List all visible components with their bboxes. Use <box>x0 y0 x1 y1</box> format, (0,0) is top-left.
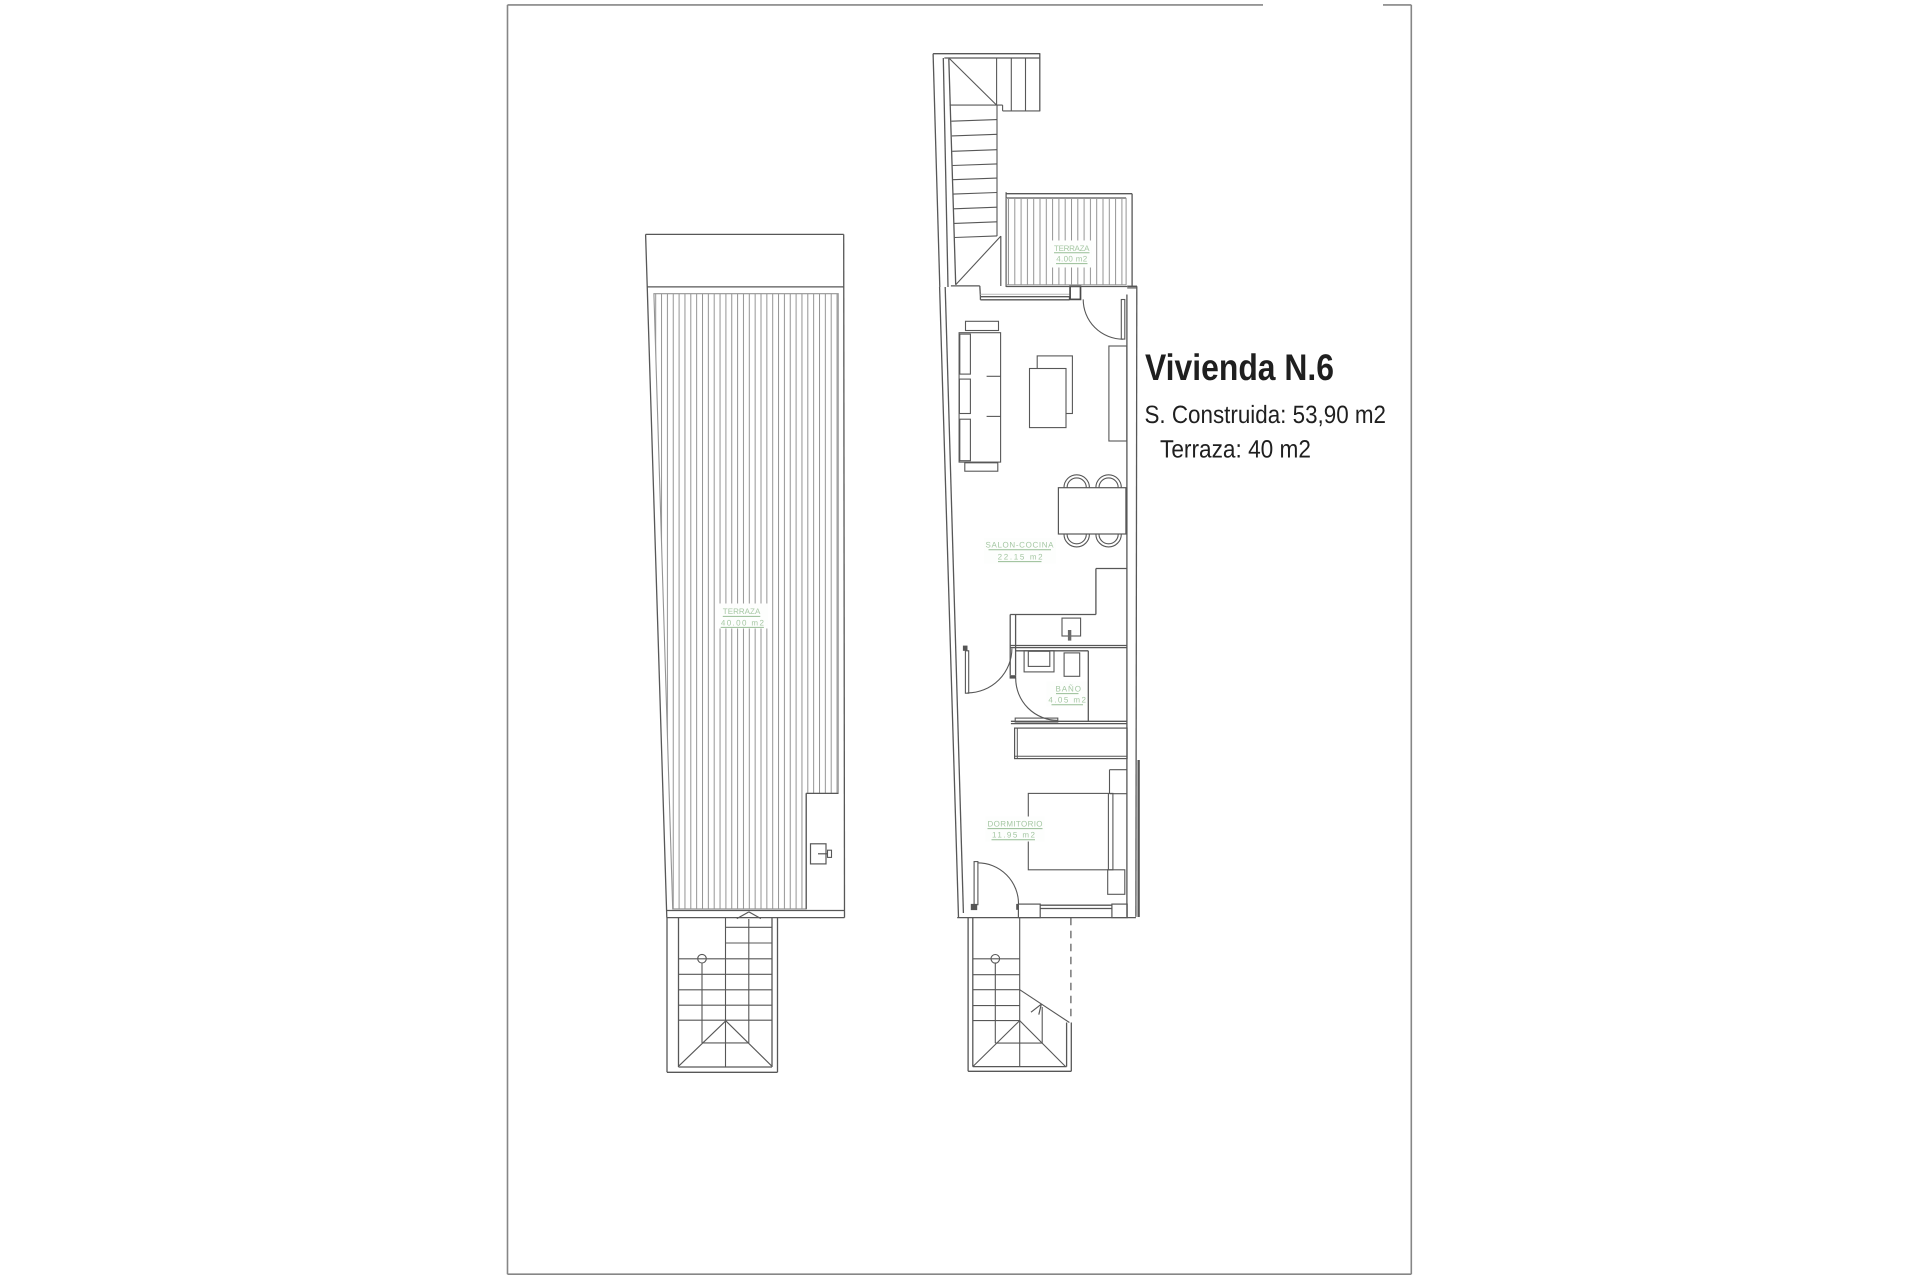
svg-text:SALON-COCINA: SALON-COCINA <box>986 541 1055 550</box>
svg-text:11.95 m2: 11.95 m2 <box>992 831 1036 840</box>
svg-text:Vivienda N.6: Vivienda N.6 <box>1145 347 1334 388</box>
svg-text:Terraza: 40 m2: Terraza: 40 m2 <box>1160 436 1311 464</box>
svg-text:4.05 m2: 4.05 m2 <box>1048 696 1086 705</box>
svg-text:DORMITORIO: DORMITORIO <box>988 819 1043 828</box>
svg-text:TERRAZA: TERRAZA <box>723 607 761 616</box>
svg-text:22.15 m2: 22.15 m2 <box>998 552 1044 561</box>
svg-text:TERRAZA: TERRAZA <box>1054 244 1090 253</box>
svg-text:40.00 m2: 40.00 m2 <box>721 618 765 627</box>
svg-text:S. Construida: 53,90 m2: S. Construida: 53,90 m2 <box>1145 401 1387 429</box>
svg-text:BAÑO: BAÑO <box>1056 683 1082 693</box>
svg-text:4.00 m2: 4.00 m2 <box>1056 255 1088 264</box>
